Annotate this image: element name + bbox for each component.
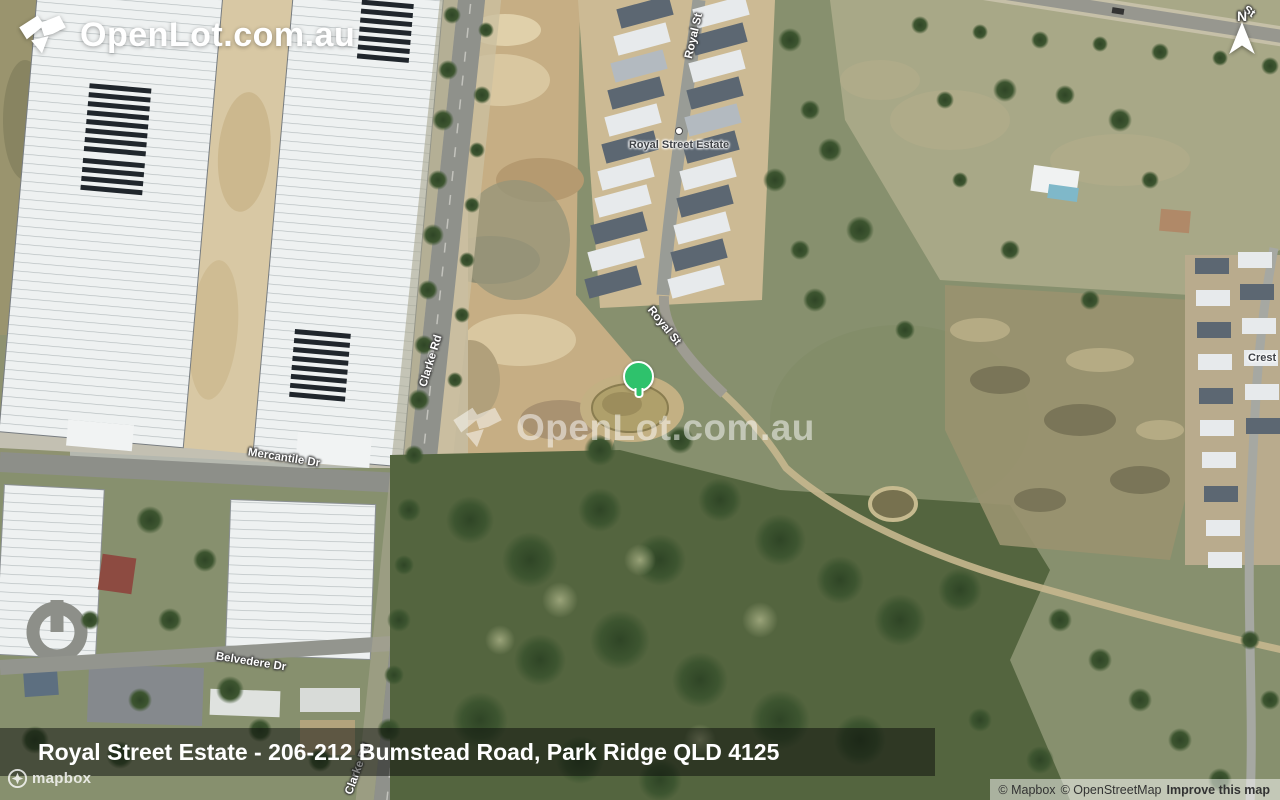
address-bar: Royal Street Estate - 206-212 Bumstead R… (0, 728, 935, 776)
improve-this-map-link[interactable]: Improve this map (1167, 783, 1271, 797)
mapbox-icon (7, 768, 28, 789)
satellite-imagery (0, 0, 1280, 800)
location-marker[interactable] (623, 361, 654, 392)
estate-poi-dot (675, 127, 683, 135)
mapbox-logo-link[interactable]: mapbox (7, 768, 91, 789)
map-canvas[interactable]: Royal St Royal St Clarke Rd Clarke Rd Me… (0, 0, 1280, 800)
map-attribution: © Mapbox © OpenStreetMap Improve this ma… (990, 779, 1280, 800)
address-text: Royal Street Estate - 206-212 Bumstead R… (0, 739, 779, 766)
osm-attribution-link[interactable]: © OpenStreetMap (1061, 783, 1162, 797)
mapbox-attribution-link[interactable]: © Mapbox (998, 783, 1055, 797)
mapbox-wordmark: mapbox (32, 770, 91, 787)
